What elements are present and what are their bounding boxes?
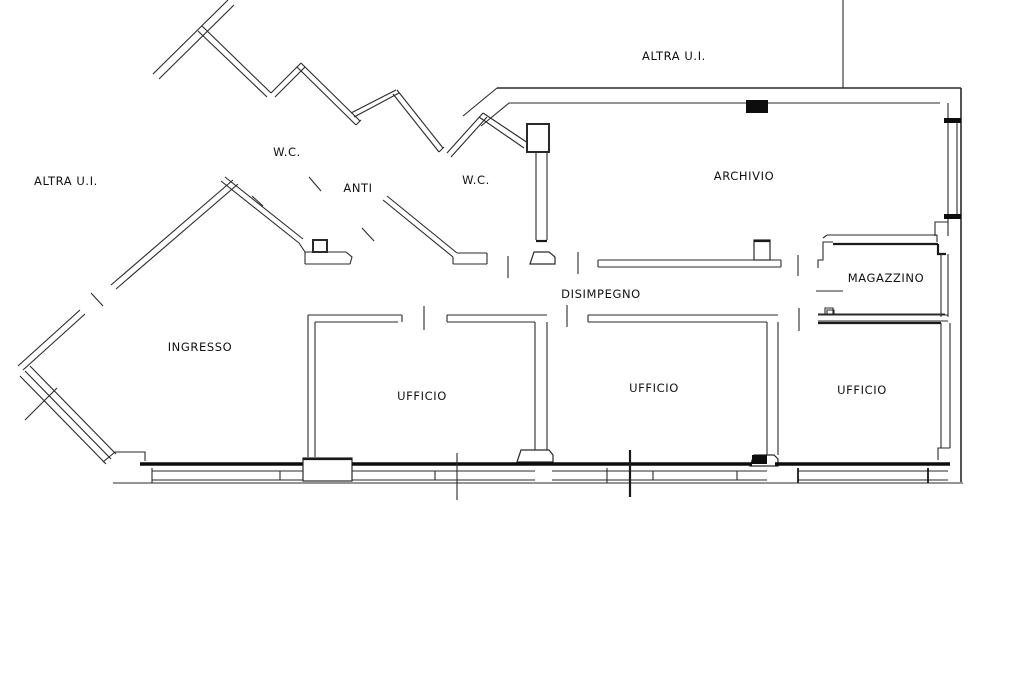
room-label-archivio: ARCHIVIO xyxy=(714,169,774,183)
label-altra-ui-top: ALTRA U.I. xyxy=(642,49,706,63)
room-label-disimpegno: DISIMPEGNO xyxy=(561,287,641,301)
room-label-ufficio-3: UFFICIO xyxy=(837,383,887,397)
exterior-walls xyxy=(497,0,961,482)
floor-plan-canvas: ALTRA U.I. ALTRA U.I. W.C. ANTI W.C. ARC… xyxy=(0,0,1024,682)
room-label-magazzino: MAGAZZINO xyxy=(848,271,925,285)
room-label-wc-2: W.C. xyxy=(462,173,490,187)
room-label-ingresso: INGRESSO xyxy=(168,340,233,354)
label-altra-ui-left: ALTRA U.I. xyxy=(34,174,98,188)
room-label-wc-1: W.C. xyxy=(273,145,301,159)
floorplan-drawing xyxy=(0,0,1024,682)
diagonal-walls xyxy=(153,0,549,264)
room-label-ufficio-2: UFFICIO xyxy=(629,381,679,395)
room-label-ufficio-1: UFFICIO xyxy=(397,389,447,403)
room-label-anti: ANTI xyxy=(343,181,372,195)
ingresso-boundary-walls xyxy=(18,180,238,464)
